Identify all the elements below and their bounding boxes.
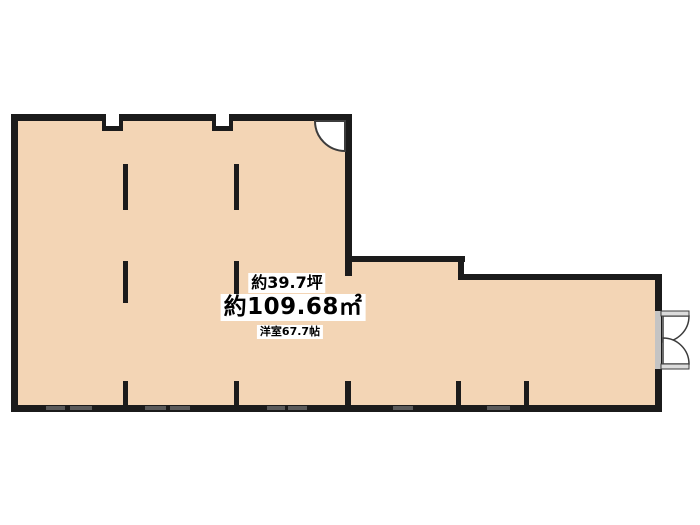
interior-wall-dash (524, 381, 529, 405)
notch-gap (106, 114, 119, 126)
window-mark (267, 406, 285, 410)
interior-wall-dash (345, 381, 351, 405)
floor-area (14, 117, 658, 409)
wall-step-top-a (345, 256, 465, 262)
interior-wall-dash (234, 164, 239, 210)
wall-upper-right (345, 114, 352, 276)
window-mark (170, 406, 190, 410)
window-mark (288, 406, 307, 410)
interior-wall-dash (123, 164, 128, 210)
floor-area-mid (345, 259, 462, 409)
notch-bottom (102, 126, 123, 131)
room-size-label: 洋室67.7帖 (257, 325, 323, 339)
interior-wall-dash (456, 381, 461, 405)
area-label-sqm: 約109.68㎡ (221, 294, 366, 321)
wall-top (11, 114, 352, 121)
wall-bottom (11, 405, 662, 412)
floor-plan-drawing (0, 0, 700, 525)
top-wall-notch-1 (102, 114, 123, 131)
interior-wall-dash (234, 381, 239, 405)
door-opening (655, 311, 661, 369)
interior-wall-dash (123, 261, 128, 303)
interior-wall-dash (123, 381, 128, 405)
floor-area-right (458, 276, 658, 409)
window-mark (145, 406, 166, 410)
wall-left (11, 114, 18, 412)
floor-area-left (14, 117, 348, 409)
double-door-icon (655, 311, 689, 369)
wall-step-top-b (458, 274, 662, 280)
window-mark (70, 406, 92, 410)
floor-plan-page: 約39.7坪 約109.68㎡ 洋室67.7帖 (0, 0, 700, 525)
door-swing-arc-bottom (663, 338, 689, 364)
window-mark (46, 406, 65, 410)
door-leaf-top (661, 311, 689, 316)
area-label-tsubo: 約39.7坪 (248, 273, 325, 293)
notch-gap (216, 114, 229, 126)
top-wall-notch-2 (212, 114, 233, 131)
notch-bottom (212, 126, 233, 131)
door-leaf-bottom (661, 364, 689, 369)
window-mark (393, 406, 413, 410)
window-mark (487, 406, 510, 410)
